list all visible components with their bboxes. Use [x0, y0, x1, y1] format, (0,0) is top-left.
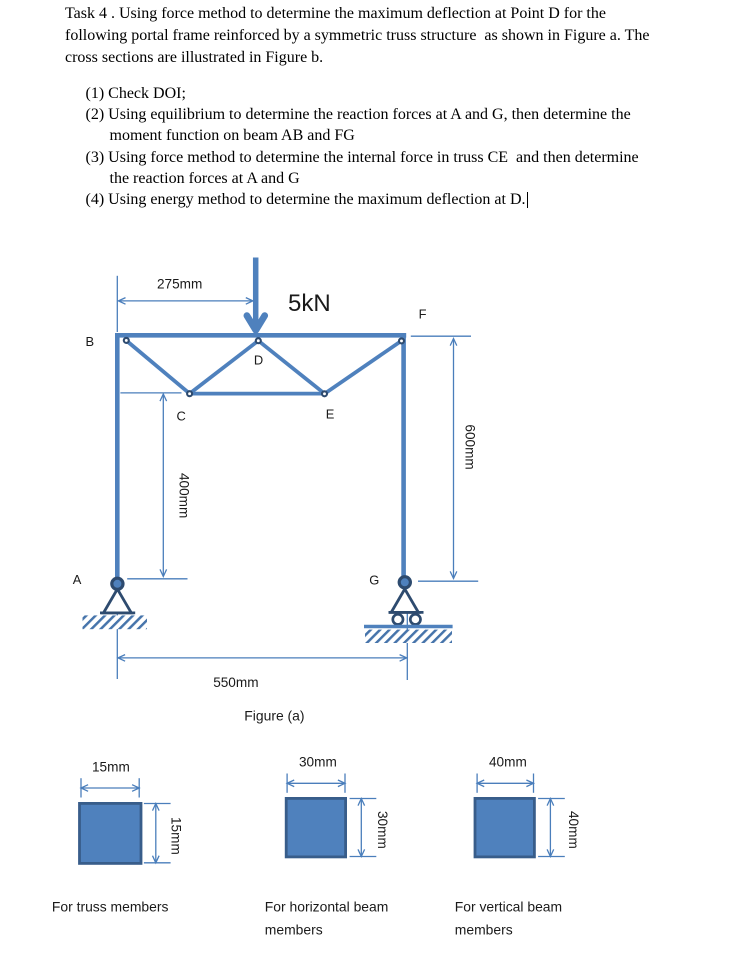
svg-text:550mm: 550mm [213, 675, 258, 690]
svg-text:B: B [86, 334, 95, 349]
svg-text:For truss members: For truss members [52, 899, 169, 915]
svg-text:G: G [369, 573, 379, 588]
svg-text:Figure (a): Figure (a) [244, 707, 304, 723]
svg-text:15mm: 15mm [169, 817, 184, 855]
svg-text:30mm: 30mm [299, 755, 337, 770]
svg-text:30mm: 30mm [375, 811, 390, 849]
svg-text:E: E [326, 407, 335, 422]
svg-text:For horizontal beam: For horizontal beam [265, 899, 389, 915]
svg-text:15mm: 15mm [92, 760, 130, 775]
svg-text:40mm: 40mm [489, 755, 527, 770]
svg-text:A: A [73, 572, 82, 587]
svg-text:F: F [419, 306, 427, 321]
svg-text:400mm: 400mm [177, 473, 192, 518]
svg-text:For vertical beam: For vertical beam [455, 899, 562, 915]
svg-text:5kN: 5kN [288, 290, 331, 317]
svg-text:600mm: 600mm [463, 424, 478, 469]
svg-text:C: C [177, 409, 186, 424]
svg-text:275mm: 275mm [157, 276, 202, 291]
svg-text:members: members [455, 922, 513, 938]
svg-text:members: members [265, 922, 323, 938]
svg-text:D: D [254, 353, 263, 368]
svg-text:40mm: 40mm [566, 811, 581, 849]
